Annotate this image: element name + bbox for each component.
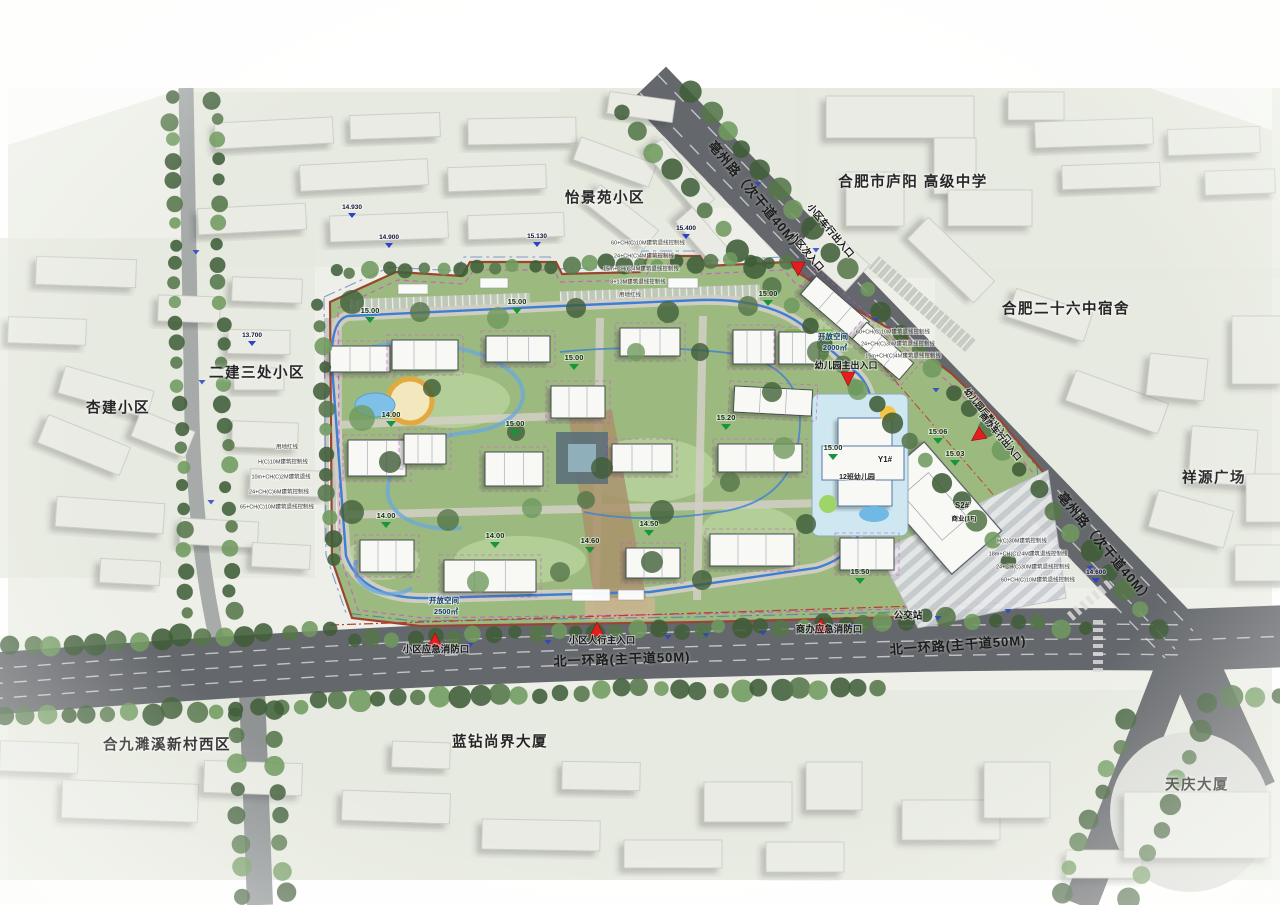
street-tree bbox=[218, 337, 231, 350]
street-tree bbox=[170, 379, 183, 392]
street-tree bbox=[209, 705, 224, 720]
residential-building bbox=[392, 340, 458, 370]
street-tree bbox=[697, 203, 713, 219]
setback-note: 24+CH(C)4M建筑控制线 bbox=[614, 251, 675, 259]
residential-building bbox=[733, 330, 775, 364]
context-building bbox=[468, 117, 576, 145]
street-tree bbox=[529, 260, 541, 272]
street-tree bbox=[169, 623, 192, 646]
context-building bbox=[806, 762, 862, 810]
street-tree bbox=[389, 688, 406, 705]
street-tree bbox=[1030, 480, 1048, 498]
street-tree bbox=[168, 256, 182, 270]
street-tree bbox=[1160, 794, 1181, 815]
context-building bbox=[468, 212, 565, 239]
context-building bbox=[99, 558, 160, 585]
elevation-value: 14.00 bbox=[382, 410, 401, 419]
context-building bbox=[0, 741, 78, 774]
elevation-value: 15.00 bbox=[759, 289, 778, 298]
street-tree bbox=[170, 356, 182, 368]
residential-building bbox=[485, 452, 543, 486]
site-tree bbox=[848, 380, 868, 400]
site-label: 开放空间 bbox=[818, 331, 848, 341]
street-tree bbox=[210, 238, 222, 250]
context-building bbox=[61, 780, 198, 823]
street-tree bbox=[384, 632, 399, 647]
street-tree bbox=[592, 680, 610, 698]
street-tree bbox=[234, 889, 250, 905]
street-tree bbox=[869, 396, 886, 413]
site-tree bbox=[591, 457, 613, 479]
street-tree bbox=[224, 563, 240, 579]
street-tree bbox=[222, 502, 236, 516]
street-tree bbox=[311, 299, 323, 311]
street-tree bbox=[15, 706, 34, 725]
street-tree bbox=[176, 479, 188, 491]
street-tree bbox=[552, 685, 568, 701]
street-tree bbox=[789, 677, 811, 699]
street-tree bbox=[703, 254, 718, 269]
street-tree bbox=[1139, 845, 1156, 862]
street-tree bbox=[38, 705, 58, 725]
street-tree bbox=[166, 90, 179, 103]
road-elevation-value: 15.400 bbox=[676, 225, 696, 232]
setback-note: H(C)30M建筑控制线 bbox=[997, 536, 1047, 544]
street-tree bbox=[643, 143, 663, 163]
site-tree bbox=[762, 382, 782, 402]
street-tree bbox=[265, 700, 285, 720]
plan-tag-box bbox=[480, 278, 508, 288]
setback-note: 用地红线 bbox=[619, 290, 642, 298]
street-tree bbox=[314, 320, 326, 332]
street-tree bbox=[328, 690, 347, 709]
site-tree bbox=[641, 551, 663, 573]
street-tree bbox=[319, 447, 334, 462]
context-building bbox=[158, 295, 221, 323]
context-building bbox=[826, 96, 974, 138]
site-tree bbox=[379, 451, 401, 473]
street-tree bbox=[277, 882, 296, 901]
street-tree bbox=[161, 697, 183, 719]
street-tree bbox=[1220, 685, 1243, 708]
street-tree bbox=[310, 691, 327, 708]
entrance-label: 公交站 bbox=[894, 610, 923, 622]
street-tree bbox=[227, 753, 247, 773]
street-tree bbox=[849, 679, 867, 697]
site-label: 12班幼儿园 bbox=[839, 472, 875, 481]
street-tree bbox=[222, 439, 234, 451]
plan-tag-box bbox=[668, 278, 698, 288]
street-tree bbox=[294, 700, 309, 715]
street-tree bbox=[419, 263, 431, 275]
plan-tag-box bbox=[572, 589, 610, 601]
street-tree bbox=[319, 423, 332, 436]
street-tree bbox=[870, 302, 891, 323]
setback-note: 用地红线 bbox=[276, 442, 299, 450]
street-tree bbox=[319, 401, 336, 418]
context-building bbox=[1062, 162, 1161, 189]
site-tree bbox=[577, 491, 595, 509]
street-tree bbox=[771, 620, 789, 638]
street-tree bbox=[209, 132, 225, 148]
street-tree bbox=[221, 540, 238, 557]
street-tree bbox=[325, 530, 342, 547]
street-tree bbox=[1133, 866, 1151, 884]
context-building bbox=[234, 368, 284, 390]
street-tree bbox=[661, 158, 682, 179]
street-tree bbox=[1114, 740, 1128, 754]
entrance-label: 小区应急消防口 bbox=[402, 644, 470, 656]
context-building bbox=[251, 542, 310, 569]
context-building bbox=[342, 790, 451, 824]
context-building bbox=[934, 138, 976, 194]
plan-tag-box bbox=[398, 284, 428, 294]
street-tree bbox=[1149, 619, 1169, 639]
street-tree bbox=[837, 258, 859, 280]
street-tree bbox=[1062, 860, 1077, 875]
street-tree bbox=[176, 542, 191, 557]
street-tree bbox=[551, 623, 567, 639]
road-elevation-value: 13.700 bbox=[242, 332, 262, 339]
street-tree bbox=[226, 602, 244, 620]
context-building bbox=[704, 782, 792, 822]
street-tree bbox=[319, 468, 333, 482]
street-tree bbox=[732, 618, 753, 639]
setback-note: 60+CH(C)10M建筑退线控制线 bbox=[856, 327, 931, 335]
street-tree bbox=[164, 172, 181, 189]
street-tree bbox=[701, 102, 723, 124]
site-label: 商业(1F) bbox=[952, 514, 977, 523]
context-building bbox=[846, 172, 904, 226]
street-tree bbox=[489, 262, 501, 274]
site-tree bbox=[738, 296, 758, 316]
street-tree bbox=[453, 262, 468, 277]
street-tree bbox=[282, 625, 298, 641]
street-tree bbox=[254, 623, 273, 642]
street-tree bbox=[167, 276, 180, 289]
setback-note: 24+CH(C)6M建筑控制线 bbox=[249, 487, 310, 495]
street-tree bbox=[215, 628, 234, 647]
context-building bbox=[1146, 353, 1208, 401]
setback-note: H(C)10M建筑控制线 bbox=[258, 457, 308, 465]
street-tree bbox=[84, 633, 106, 655]
residential-building bbox=[551, 386, 605, 418]
street-tree bbox=[178, 461, 191, 474]
elevation-value: 15.50 bbox=[851, 567, 870, 576]
street-tree bbox=[582, 255, 598, 271]
street-tree bbox=[509, 686, 527, 704]
elevation-value: 15.20 bbox=[717, 413, 736, 422]
site-label: S2# bbox=[955, 501, 970, 510]
street-tree bbox=[302, 621, 318, 637]
residential-building bbox=[612, 444, 672, 472]
street-tree bbox=[505, 259, 518, 272]
street-tree bbox=[213, 173, 225, 185]
street-tree bbox=[869, 680, 886, 697]
street-tree bbox=[749, 159, 770, 180]
street-tree bbox=[228, 707, 242, 721]
street-tree bbox=[313, 383, 330, 400]
street-tree bbox=[650, 619, 668, 637]
context-building bbox=[624, 840, 722, 868]
street-tree bbox=[64, 635, 85, 656]
street-tree bbox=[211, 195, 228, 212]
street-tree bbox=[1052, 883, 1073, 904]
road-elevation-value: 14.900 bbox=[379, 234, 399, 241]
street-tree bbox=[168, 316, 183, 331]
site-tree bbox=[410, 302, 430, 322]
residential-building bbox=[404, 434, 446, 464]
street-tree bbox=[529, 625, 546, 642]
street-tree bbox=[749, 679, 767, 697]
context-building bbox=[562, 761, 640, 790]
site-tree bbox=[550, 562, 570, 582]
context-building bbox=[448, 164, 547, 191]
street-tree bbox=[398, 263, 413, 278]
street-tree bbox=[169, 217, 181, 229]
context-building bbox=[1232, 316, 1280, 384]
context-building bbox=[1008, 92, 1064, 120]
street-tree bbox=[212, 296, 226, 310]
street-tree bbox=[210, 215, 226, 231]
elevation-value: 15.03 bbox=[946, 449, 965, 458]
site-tree bbox=[487, 307, 509, 329]
setback-note: 15m+CH(C)4M建筑退线控制线 bbox=[865, 351, 941, 359]
street-tree bbox=[272, 807, 288, 823]
street-tree bbox=[1012, 462, 1026, 476]
entrance-label: 商办应急消防口 bbox=[796, 624, 863, 636]
street-tree bbox=[1069, 833, 1088, 852]
context-building bbox=[203, 760, 302, 795]
site-tree bbox=[522, 498, 542, 518]
kindergarten-lawn bbox=[819, 495, 837, 513]
street-tree bbox=[232, 835, 251, 854]
street-tree bbox=[687, 256, 705, 274]
site-tree bbox=[566, 298, 586, 318]
street-tree bbox=[227, 806, 245, 824]
street-tree bbox=[229, 728, 245, 744]
street-tree bbox=[1081, 539, 1104, 562]
street-tree bbox=[177, 503, 190, 516]
street-tree bbox=[1115, 709, 1136, 730]
street-tree bbox=[169, 334, 185, 350]
street-tree bbox=[681, 178, 700, 197]
elevation-value: 15.00 bbox=[506, 419, 525, 428]
elevation-value: 15.00 bbox=[565, 353, 584, 362]
street-tree bbox=[349, 689, 372, 712]
street-tree bbox=[614, 105, 629, 120]
street-tree bbox=[217, 418, 233, 434]
street-tree bbox=[231, 782, 245, 796]
street-tree bbox=[688, 682, 706, 700]
street-tree bbox=[210, 274, 226, 290]
street-tree bbox=[361, 261, 379, 279]
street-tree bbox=[485, 626, 502, 643]
street-tree bbox=[212, 152, 225, 165]
master-plan-drawing: 15.0015.0015.0015.0015.0014.0014.0014.00… bbox=[0, 0, 1280, 905]
street-tree bbox=[964, 614, 980, 630]
street-tree bbox=[882, 412, 903, 433]
street-tree bbox=[654, 681, 669, 696]
street-tree bbox=[210, 257, 226, 273]
street-tree bbox=[213, 395, 231, 413]
street-tree bbox=[169, 296, 181, 308]
site-tree bbox=[657, 301, 679, 323]
setback-note: 60+CH(C)10M建筑退线控制线 bbox=[611, 238, 686, 246]
street-tree bbox=[932, 473, 952, 493]
street-tree bbox=[532, 689, 547, 704]
street-tree bbox=[670, 680, 689, 699]
street-tree bbox=[723, 252, 738, 267]
street-tree bbox=[77, 705, 96, 724]
site-label: 2000㎡ bbox=[823, 342, 848, 352]
residential-building bbox=[840, 538, 894, 570]
site-tree bbox=[773, 437, 795, 459]
street-tree bbox=[62, 708, 77, 723]
context-building bbox=[482, 819, 601, 851]
setback-note: 65+CH(C)10M建筑退线控制线 bbox=[240, 502, 315, 510]
street-tree bbox=[160, 113, 178, 131]
context-building bbox=[984, 762, 1050, 818]
street-tree bbox=[319, 361, 331, 373]
street-tree bbox=[100, 707, 115, 722]
street-tree bbox=[1113, 578, 1135, 600]
site-tree bbox=[627, 343, 645, 361]
street-tree bbox=[873, 612, 892, 631]
street-tree bbox=[203, 92, 221, 110]
residential-building bbox=[444, 560, 536, 592]
context-building bbox=[1168, 126, 1261, 155]
street-tree bbox=[172, 396, 187, 411]
context-building bbox=[36, 256, 137, 287]
site-label: 2500㎡ bbox=[434, 606, 459, 616]
street-tree bbox=[1245, 687, 1265, 707]
street-tree bbox=[918, 453, 933, 468]
street-tree bbox=[0, 636, 19, 655]
entrance-label: 小区人行主入口 bbox=[568, 635, 636, 647]
setback-note: 24+CH(C)30M建筑退线控制线 bbox=[996, 562, 1071, 570]
street-tree bbox=[1132, 601, 1148, 617]
street-tree bbox=[331, 264, 343, 276]
street-tree bbox=[178, 564, 194, 580]
context-building bbox=[1035, 118, 1154, 148]
street-tree bbox=[860, 282, 875, 297]
site-tree bbox=[349, 405, 375, 431]
street-tree bbox=[544, 261, 557, 274]
street-tree bbox=[273, 862, 292, 881]
street-tree bbox=[327, 553, 340, 566]
street-tree bbox=[215, 357, 227, 369]
context-building bbox=[232, 277, 303, 303]
street-tree bbox=[1045, 502, 1063, 520]
residential-building bbox=[330, 346, 390, 372]
elevation-value: 14.60 bbox=[581, 536, 600, 545]
site-tree bbox=[720, 472, 740, 492]
site-tree bbox=[796, 514, 816, 534]
street-tree bbox=[718, 121, 737, 140]
residential-building bbox=[360, 540, 414, 572]
street-tree bbox=[219, 481, 231, 493]
street-tree bbox=[314, 337, 332, 355]
street-tree bbox=[1030, 614, 1046, 630]
setback-note: 24+CH(C)30M建筑退线控制线 bbox=[861, 339, 936, 347]
street-tree bbox=[802, 318, 818, 334]
site-tree bbox=[467, 571, 489, 593]
context-building bbox=[1246, 474, 1280, 522]
street-tree bbox=[264, 756, 284, 776]
street-tree bbox=[732, 140, 750, 158]
elevation-value: 15.06 bbox=[929, 427, 948, 436]
street-tree bbox=[449, 686, 471, 708]
street-tree bbox=[1117, 888, 1140, 905]
road-elevation-value: 14.930 bbox=[342, 204, 362, 211]
street-tree bbox=[216, 377, 231, 392]
street-tree bbox=[217, 317, 232, 332]
street-tree bbox=[711, 619, 725, 633]
site-tree bbox=[423, 379, 441, 397]
elevation-value: 15.00 bbox=[824, 443, 843, 452]
context-building bbox=[392, 741, 451, 769]
street-tree bbox=[25, 636, 43, 654]
context-building bbox=[1205, 169, 1276, 195]
site-label: 开放空间 bbox=[429, 595, 459, 605]
street-tree bbox=[250, 698, 267, 715]
street-tree bbox=[266, 731, 283, 748]
residential-building bbox=[710, 534, 794, 566]
street-tree bbox=[438, 263, 451, 276]
street-tree bbox=[322, 510, 337, 525]
street-tree bbox=[471, 685, 492, 706]
street-tree bbox=[923, 359, 942, 378]
street-tree bbox=[1098, 760, 1115, 777]
street-tree bbox=[106, 630, 127, 651]
street-tree bbox=[1011, 615, 1026, 630]
street-tree bbox=[1052, 619, 1071, 638]
street-tree bbox=[232, 857, 252, 877]
residential-building bbox=[486, 336, 550, 362]
elevation-value: 15.00 bbox=[508, 297, 527, 306]
street-tree bbox=[225, 520, 238, 533]
street-tree bbox=[489, 683, 510, 704]
site-tree bbox=[691, 343, 709, 361]
road-elevation-value: 15.130 bbox=[527, 233, 547, 240]
setback-note: 60+CH(C)10M建筑退线控制线 bbox=[1001, 575, 1076, 583]
street-tree bbox=[831, 677, 851, 697]
street-tree bbox=[563, 257, 581, 275]
site-tree bbox=[340, 500, 364, 524]
street-tree bbox=[574, 686, 590, 702]
context-building bbox=[948, 190, 1032, 226]
street-tree bbox=[270, 784, 286, 800]
street-tree bbox=[193, 628, 211, 646]
street-tree bbox=[769, 177, 792, 200]
street-tree bbox=[1095, 785, 1110, 800]
elevation-value: 15.00 bbox=[361, 306, 380, 315]
street-tree bbox=[901, 433, 917, 449]
street-tree bbox=[628, 122, 647, 141]
street-tree bbox=[120, 703, 138, 721]
context-building bbox=[766, 842, 844, 872]
street-tree bbox=[464, 626, 481, 643]
street-tree bbox=[175, 422, 189, 436]
street-tree bbox=[130, 632, 149, 651]
site-tree bbox=[692, 570, 712, 590]
street-tree bbox=[470, 260, 484, 274]
street-tree bbox=[613, 678, 631, 696]
street-tree bbox=[1182, 750, 1197, 765]
elevation-value: 14.00 bbox=[486, 531, 505, 540]
street-tree bbox=[370, 691, 385, 706]
